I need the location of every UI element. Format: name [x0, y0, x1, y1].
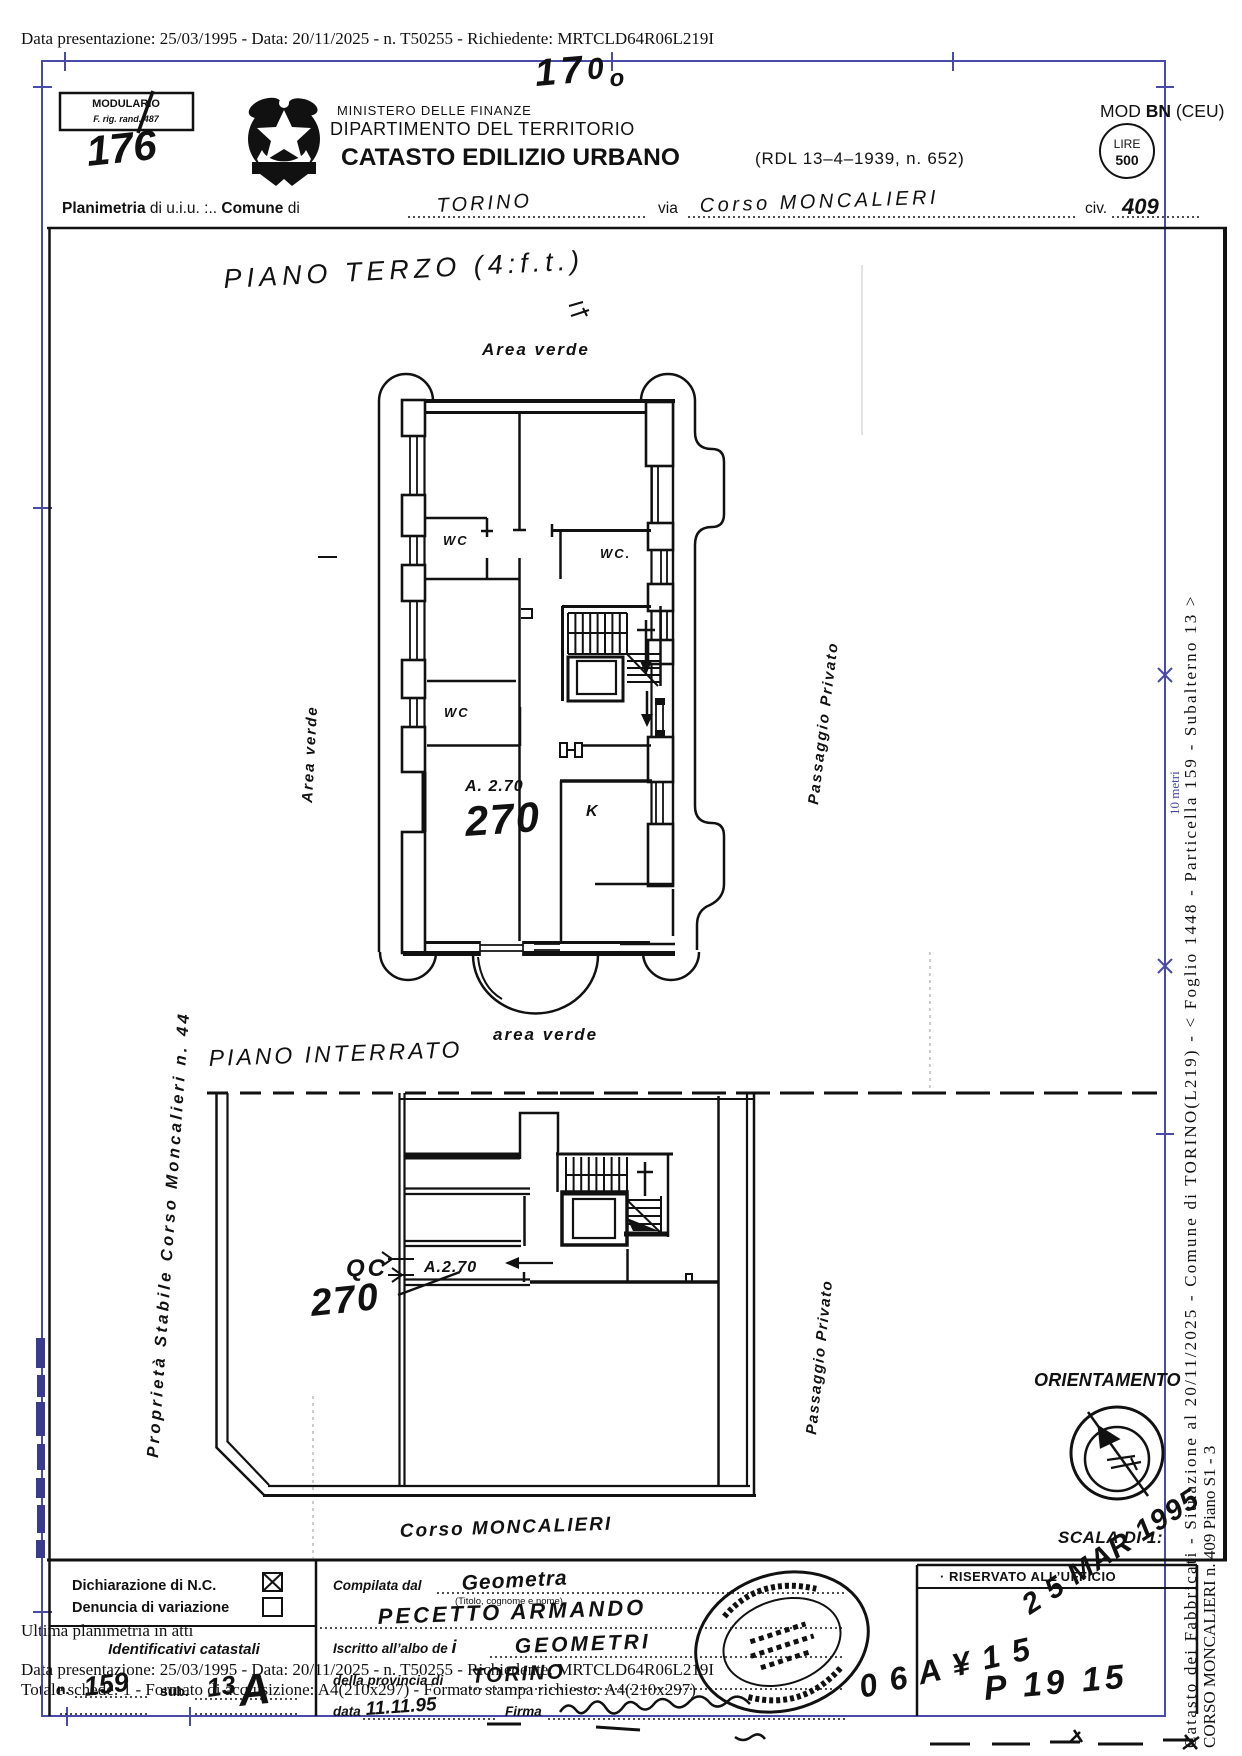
- svg-text:Catasto dei Fabbricati - Situa: Catasto dei Fabbricati - Situazione al 2…: [1181, 594, 1200, 1748]
- svg-text:WC.: WC.: [600, 546, 631, 561]
- svg-text:170o: 170o: [533, 45, 630, 99]
- svg-text:Corso MONCALIERI: Corso MONCALIERI: [699, 187, 939, 217]
- svg-text:Geometra: Geometra: [461, 1566, 568, 1595]
- svg-text:Iscritto all’albo de i: Iscritto all’albo de i: [333, 1637, 458, 1657]
- svg-text:13: 13: [205, 1669, 238, 1703]
- svg-text:sub.: sub.: [160, 1683, 189, 1699]
- svg-text:MINISTERO DELLE FINANZE: MINISTERO DELLE FINANZE: [337, 103, 532, 118]
- svg-text:WC: WC: [444, 705, 470, 720]
- svg-text:LIRE: LIRE: [1114, 137, 1141, 151]
- svg-text:10 metri: 10 metri: [1167, 771, 1182, 815]
- svg-text:A.2.70: A.2.70: [423, 1259, 477, 1276]
- svg-text:K: K: [586, 803, 599, 820]
- svg-text:A. 2.70: A. 2.70: [464, 778, 524, 795]
- svg-text:Planimetria di u.i.u. :.. Comu: Planimetria di u.i.u. :.. Comune di: [62, 200, 300, 217]
- svg-text:270: 270: [462, 793, 542, 845]
- svg-text:409: 409: [1121, 194, 1159, 219]
- svg-text:Ultima planimetria in atti: Ultima planimetria in atti: [21, 1621, 194, 1640]
- svg-text:Identificativi catastali: Identificativi catastali: [108, 1641, 261, 1658]
- svg-text:A: A: [235, 1664, 273, 1716]
- svg-text:PIANO TERZO (4:f.t.): PIANO TERZO (4:f.t.): [223, 245, 585, 294]
- svg-text:CORSO MONCALIERI n. 409 Piano: CORSO MONCALIERI n. 409 Piano S1 - 3: [1200, 1446, 1219, 1748]
- svg-text:WC: WC: [443, 533, 469, 548]
- svg-text:500: 500: [1115, 152, 1139, 168]
- svg-text:Passaggio Privato: Passaggio Privato: [803, 1279, 836, 1435]
- svg-text:TORINO: TORINO: [471, 1660, 565, 1688]
- svg-text:Compilata dal: Compilata dal: [333, 1578, 422, 1593]
- svg-text:MOD BN (CEU): MOD BN (CEU): [1100, 101, 1224, 121]
- svg-text:GEOMETRI: GEOMETRI: [514, 1630, 651, 1658]
- svg-text:Proprietà Stabile Corso Moncal: Proprietà Stabile Corso Moncalieri n. 44: [144, 1010, 193, 1458]
- svg-text:Passaggio Privato: Passaggio Privato: [805, 641, 842, 806]
- svg-text:CATASTO EDILIZIO URBANO: CATASTO EDILIZIO URBANO: [341, 144, 680, 171]
- svg-text:SCALA DI 1:: SCALA DI 1:: [1058, 1528, 1163, 1547]
- svg-text:2 5 MAR 1995: 2 5 MAR 1995: [1016, 1482, 1206, 1621]
- svg-text:area verde: area verde: [493, 1025, 598, 1044]
- svg-text:data: data: [333, 1704, 361, 1719]
- svg-text:PIANO INTERRATO: PIANO INTERRATO: [208, 1036, 462, 1071]
- svg-text:Area verde: Area verde: [299, 705, 321, 804]
- svg-text:Data presentazione: 25/03/1995: Data presentazione: 25/03/1995 - Data: 2…: [21, 29, 714, 48]
- svg-text:Corso MONCALIERI: Corso MONCALIERI: [399, 1514, 612, 1542]
- svg-text:176: 176: [84, 121, 159, 175]
- svg-text:ORIENTAMENTO: ORIENTAMENTO: [1034, 1370, 1181, 1390]
- svg-text:Area verde: Area verde: [481, 340, 590, 359]
- svg-text:(RDL 13–4–1939, n. 652): (RDL 13–4–1939, n. 652): [755, 149, 965, 168]
- svg-text:DIPARTIMENTO DEL TERRITORIO: DIPARTIMENTO DEL TERRITORIO: [330, 119, 635, 139]
- svg-text:via: via: [658, 200, 678, 217]
- svg-text:TORINO: TORINO: [436, 190, 532, 217]
- svg-text:della provincia di: della provincia di: [333, 1673, 444, 1688]
- svg-text:Denuncia di variazione: Denuncia di variazione: [72, 1600, 229, 1616]
- svg-text:270: 270: [308, 1276, 382, 1325]
- svg-text:159: 159: [82, 1667, 130, 1702]
- svg-text:civ.: civ.: [1085, 200, 1107, 217]
- svg-text:n.: n.: [57, 1681, 69, 1697]
- svg-text:Dichiarazione di N.C.: Dichiarazione di N.C.: [72, 1578, 216, 1594]
- svg-text:Firma: Firma: [505, 1704, 542, 1719]
- svg-text:PECETTO ARMANDO: PECETTO ARMANDO: [377, 1595, 646, 1629]
